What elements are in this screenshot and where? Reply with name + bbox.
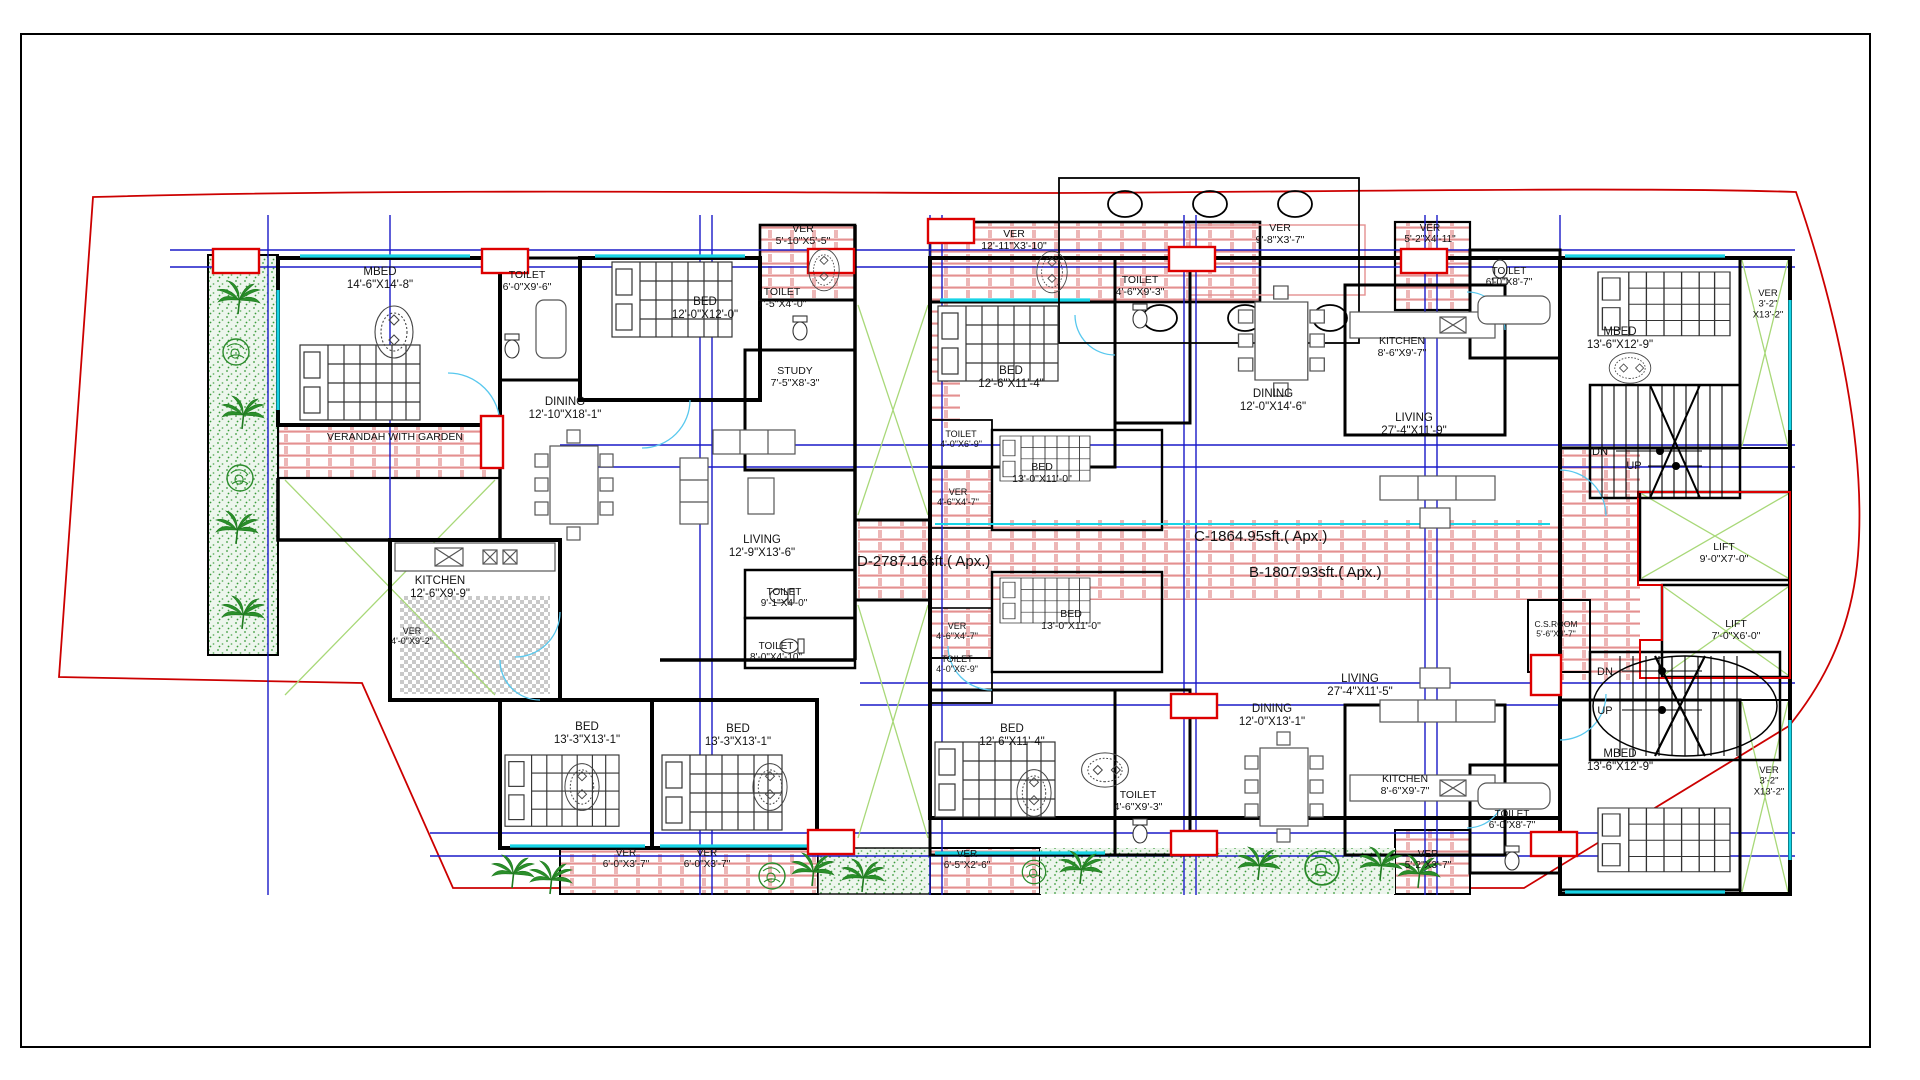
- room-label-toilet-c: TOILET4'-6"X9'-3": [1116, 274, 1165, 298]
- room-label-bed-b: BED12'-6"X11'-4": [979, 723, 1044, 748]
- room-label-toilet-b-small: TOILET4'-0"X6'-9": [936, 654, 978, 674]
- unit-area-label: C-1864.95sft.( Apx.): [1194, 528, 1327, 545]
- unit-area-label: B-1807.93sft.( Apx.): [1249, 564, 1382, 581]
- room-label-toilet-d1: TOILET6'-0"X9'-6": [503, 269, 552, 293]
- room-label-kitchen-c: KITCHEN8'-6"X9'-7": [1378, 335, 1427, 359]
- room-label-dining-c: DINING12'-0"X14'-6": [1240, 388, 1306, 413]
- room-label-ver-right-top: VER3'-2"X13'-2": [1753, 288, 1784, 320]
- stair-label-up-top: UP: [1626, 460, 1641, 472]
- room-label-toilet-d2: TOILET7'-5"X4'-0": [758, 286, 807, 310]
- room-label-toilet-c-small: TOILET4'-0"X6'-9": [940, 429, 982, 449]
- room-label-bed-d-bl1: BED13'-3"X13'-1": [554, 721, 620, 746]
- room-label-living-d: LIVING12'-9"X13'-6": [729, 534, 795, 559]
- room-label-toilet-b: TOILET4'-6"X9'-3": [1114, 789, 1163, 813]
- room-label-mbed-bottom-right: MBED13'-6"X12'-9": [1587, 748, 1653, 773]
- stair-label-up-bottom: UP: [1597, 705, 1612, 717]
- room-label-toilet-b-right: TOILET6'-0"X8'-7": [1489, 809, 1536, 831]
- unit-area-label: D-2787.16sft.( Apx.): [857, 553, 990, 570]
- floor-plan: MBED14'-6"X14'-8"TOILET6'-0"X9'-6"BED12'…: [0, 0, 1920, 1080]
- stair-label-dn-top: DN: [1592, 446, 1608, 458]
- stair-label-dn-bottom: DN: [1597, 666, 1613, 678]
- room-label-lift2: LIFT7'-0"X6'-0": [1712, 618, 1761, 642]
- room-label-kitchen-b: KITCHEN8'-6"X9'-7": [1381, 773, 1430, 797]
- drawing-sheet: MBED14'-6"X14'-8"TOILET6'-0"X9'-6"BED12'…: [0, 0, 1920, 1080]
- room-label-toilet-c-right: TOILET6'-0"X8'-7": [1486, 266, 1533, 288]
- room-label-csroom: C.S.ROOM5'-6"X4'-7": [1535, 619, 1578, 639]
- room-label-bed-d-bl2: BED13'-3"X13'-1": [705, 723, 771, 748]
- staircase-bottom: [1593, 656, 1777, 756]
- room-label-toilet-d3: TOILET9'-1"X4'-0": [761, 587, 808, 609]
- room-label-mbed-d: MBED14'-6"X14'-8": [347, 266, 413, 291]
- room-label-ver-right-bottom: VER3'-2"X13'-2": [1754, 765, 1785, 797]
- room-label-dining-b: DINING12'-0"X13'-1": [1239, 703, 1305, 728]
- room-label-kitchen-d: KITCHEN12'-6"X9'-9": [410, 575, 470, 600]
- room-label-living-b: LIVING27'-4"X11'-5": [1327, 673, 1392, 698]
- room-label-lift1: LIFT9'-0"X7'-0": [1700, 541, 1749, 565]
- room-label-verandah-garden: VERANDAH WITH GARDEN: [327, 431, 463, 443]
- room-label-study: STUDY7'-5"X8'-3": [771, 365, 820, 389]
